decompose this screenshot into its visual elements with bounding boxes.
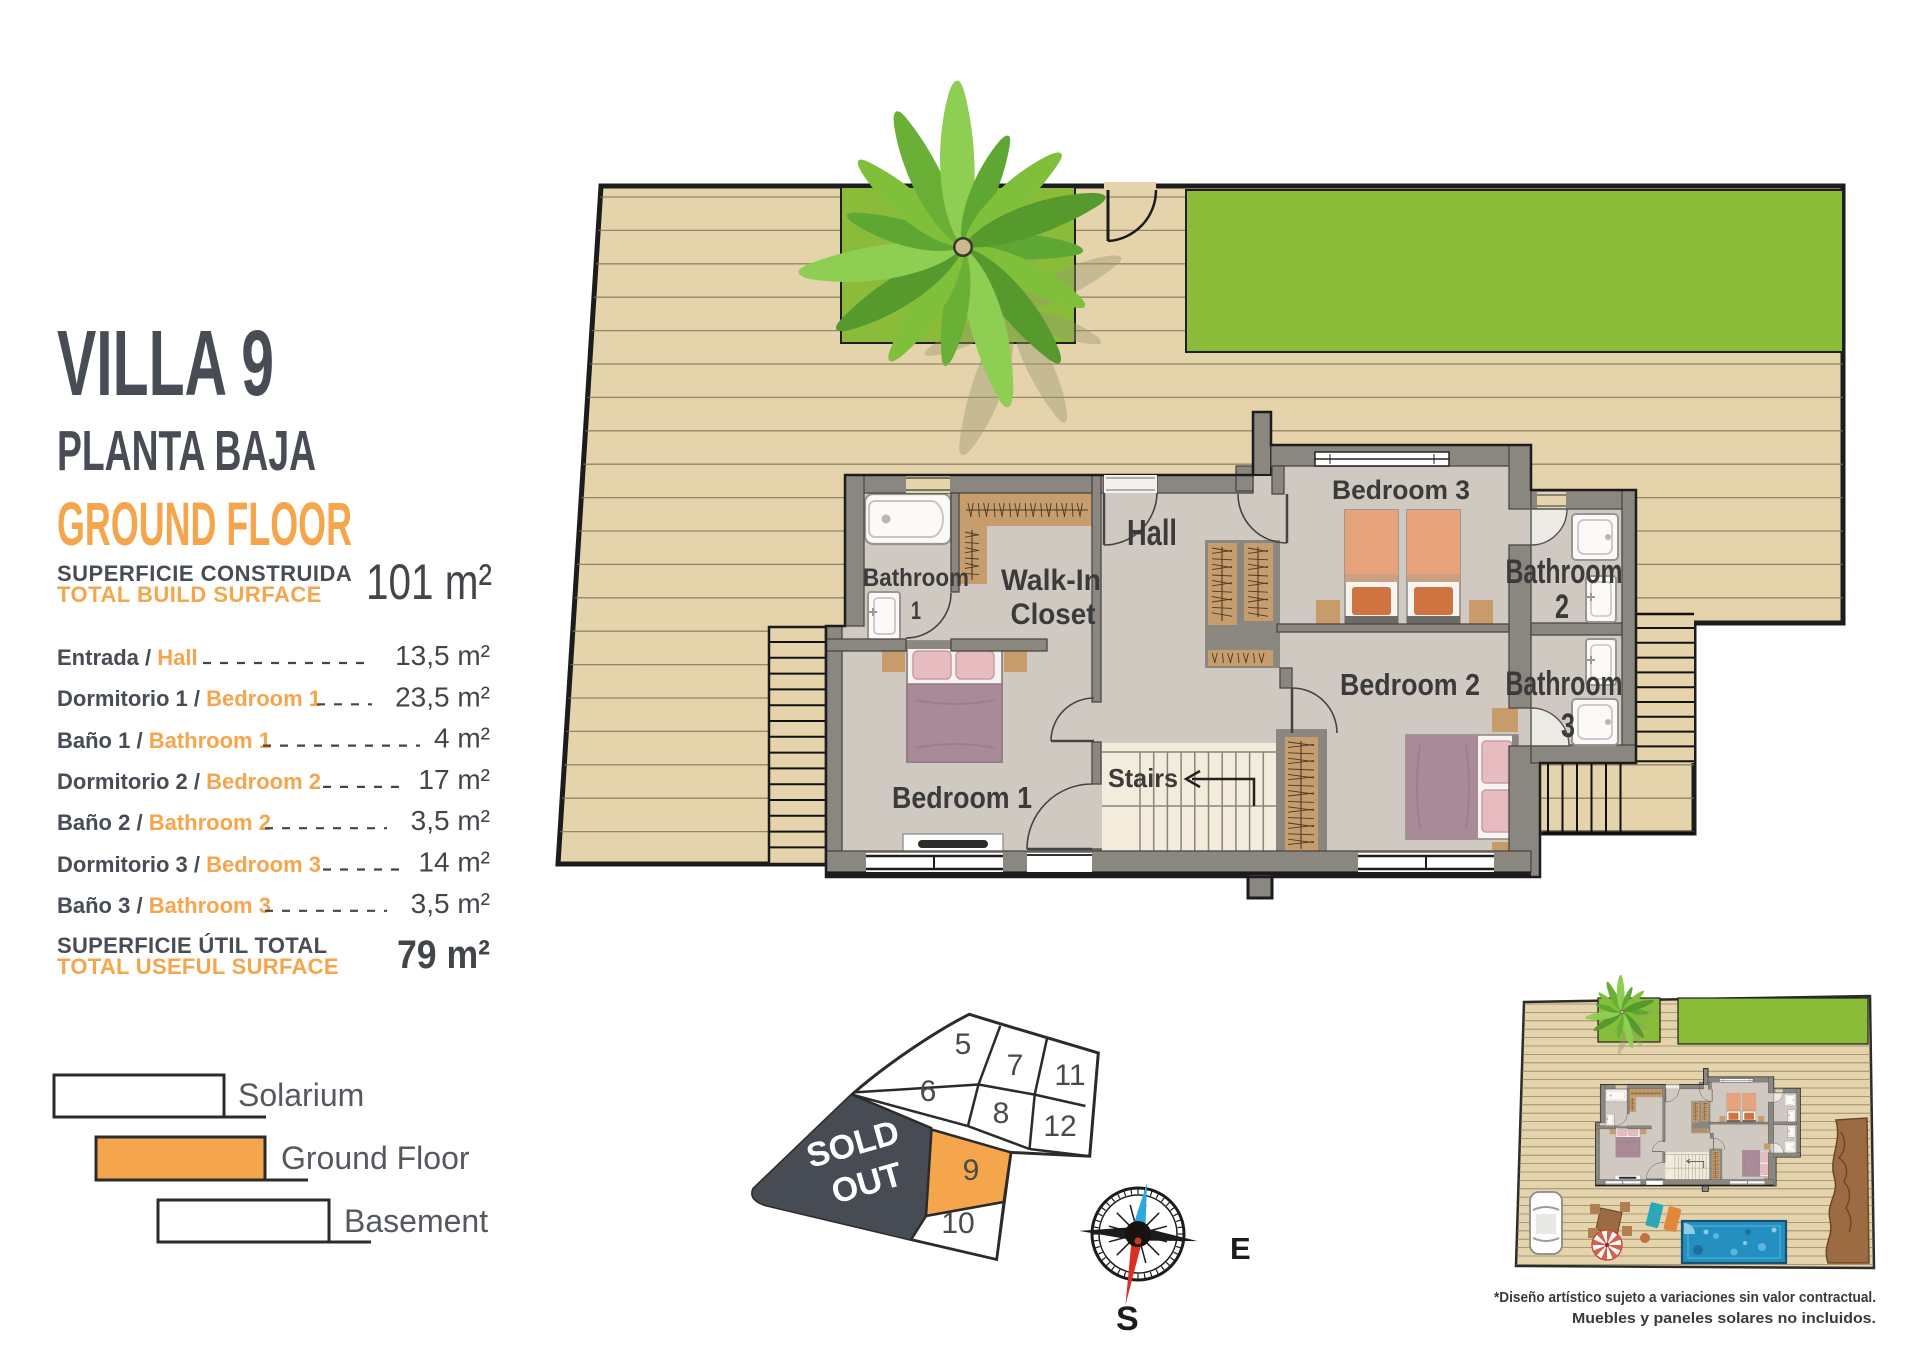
svg-text:Dormitorio 1 / Bedroom 1: Dormitorio 1 / Bedroom 1 [57,686,321,711]
svg-text:10: 10 [941,1207,974,1240]
svg-text:3,5 m²: 3,5 m² [411,805,490,836]
svg-text:Dormitorio 2 / Bedroom 2: Dormitorio 2 / Bedroom 2 [57,769,321,794]
svg-text:Ground Floor: Ground Floor [281,1140,470,1176]
svg-text:Muebles y paneles solares no i: Muebles y paneles solares no incluidos. [1572,1310,1876,1327]
svg-text:79 m²: 79 m² [397,933,490,977]
svg-text:2: 2 [1555,588,1569,626]
svg-text:Stairs: Stairs [1108,763,1178,793]
svg-text:3,5 m²: 3,5 m² [411,888,490,919]
svg-text:PLANTA BAJA: PLANTA BAJA [57,419,316,483]
svg-text:Basement: Basement [344,1203,488,1239]
svg-text:E: E [1230,1231,1251,1266]
svg-text:3: 3 [1561,707,1575,745]
svg-text:17 m²: 17 m² [418,764,490,795]
svg-text:Bedroom 3: Bedroom 3 [1332,475,1470,505]
svg-text:Bedroom 2: Bedroom 2 [1340,667,1480,702]
svg-text:12: 12 [1043,1110,1076,1143]
svg-text:S: S [1116,1300,1139,1338]
svg-text:Bathroom: Bathroom [1506,553,1623,591]
svg-text:Hall: Hall [1127,512,1177,553]
svg-text:TOTAL BUILD SURFACE: TOTAL BUILD SURFACE [57,582,322,607]
svg-text:9: 9 [963,1154,980,1187]
svg-text:7: 7 [1007,1049,1024,1082]
svg-text:Baño 2 / Bathroom 2: Baño 2 / Bathroom 2 [57,810,271,835]
svg-text:*Diseño artístico sujeto a var: *Diseño artístico sujeto a variaciones s… [1494,1289,1876,1306]
svg-text:8: 8 [993,1097,1010,1130]
svg-text:Baño 3 / Bathroom 3: Baño 3 / Bathroom 3 [57,893,271,918]
svg-text:23,5 m²: 23,5 m² [395,681,490,712]
svg-text:Baño 1 / Bathroom 1: Baño 1 / Bathroom 1 [57,728,271,753]
svg-text:5: 5 [955,1028,972,1061]
svg-text:4 m²: 4 m² [434,723,490,754]
svg-text:Dormitorio 3 / Bedroom 3: Dormitorio 3 / Bedroom 3 [57,852,321,877]
svg-text:101 m²: 101 m² [366,554,492,610]
svg-text:VILLA 9: VILLA 9 [57,311,274,415]
svg-text:GROUND FLOOR: GROUND FLOOR [57,490,352,558]
svg-text:Bathroom: Bathroom [1506,665,1623,703]
svg-text:13,5 m²: 13,5 m² [395,640,490,671]
svg-text:Walk-In: Walk-In [1001,564,1101,597]
svg-text:1: 1 [911,597,921,625]
svg-text:Closet: Closet [1011,598,1096,631]
svg-text:Entrada / Hall: Entrada / Hall [57,645,198,670]
svg-text:Bedroom 1: Bedroom 1 [892,780,1032,815]
svg-text:6: 6 [920,1075,937,1108]
svg-text:11: 11 [1054,1059,1085,1092]
svg-text:14 m²: 14 m² [418,847,490,878]
svg-text:TOTAL USEFUL SURFACE: TOTAL USEFUL SURFACE [57,954,339,979]
svg-text:Solarium: Solarium [238,1077,364,1113]
svg-text:Bathroom: Bathroom [863,564,969,592]
